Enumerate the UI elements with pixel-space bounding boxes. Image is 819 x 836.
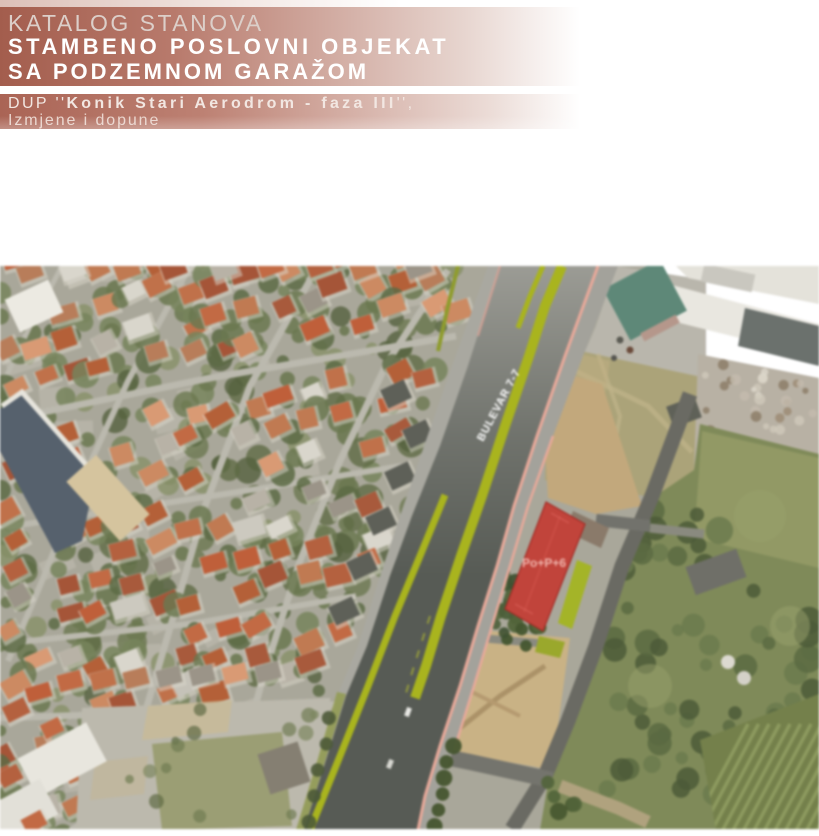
svg-text:Po+P+6: Po+P+6	[522, 556, 566, 570]
